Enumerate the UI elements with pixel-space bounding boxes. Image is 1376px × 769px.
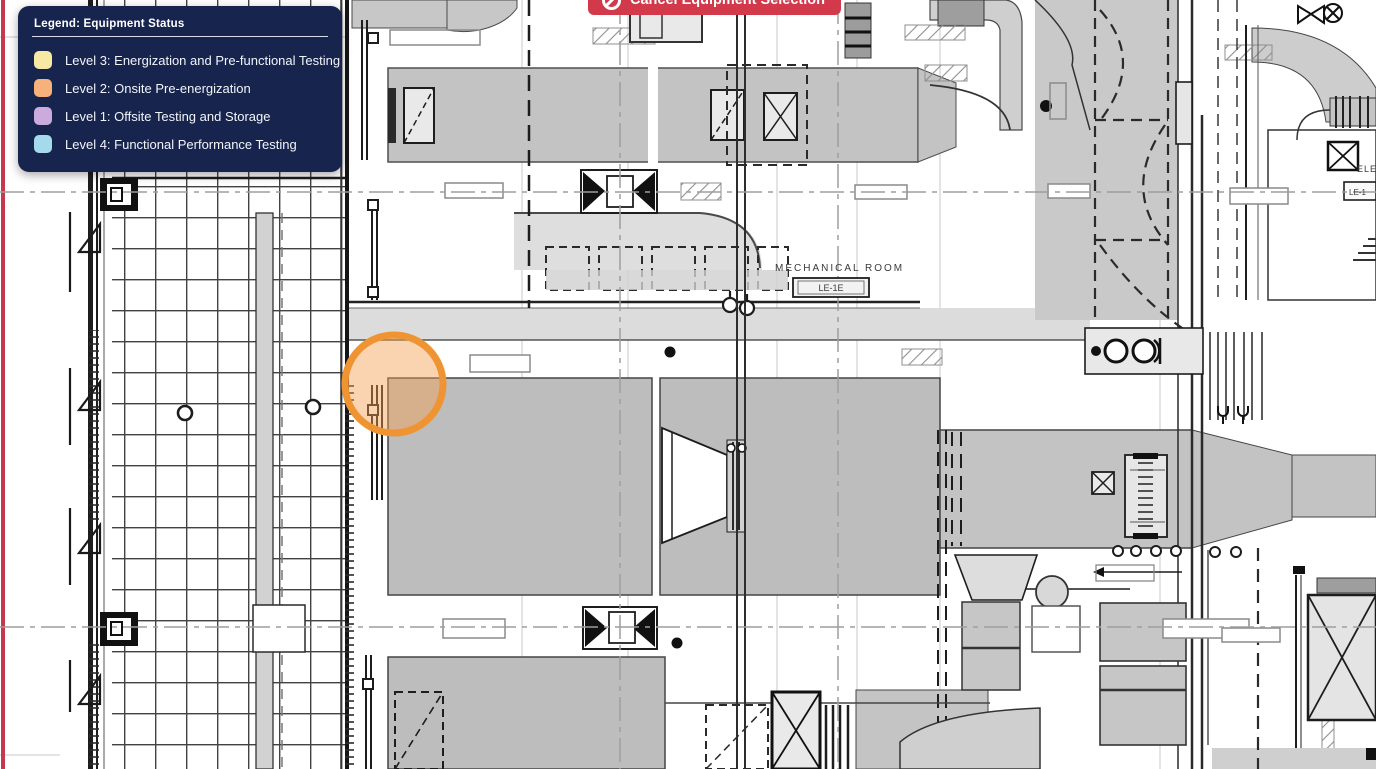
equipment-tag-label: LE-1E	[793, 278, 869, 297]
column-marker-circle	[178, 406, 192, 420]
elevator-label-partial: ELE	[1357, 164, 1376, 174]
shaft-swath	[1035, 0, 1178, 320]
legend-item-label: Level 2: Onsite Pre-energization	[65, 81, 251, 96]
legend-color-swatch	[34, 51, 52, 69]
damper-symbol	[1125, 453, 1167, 539]
legend-item: Level 2: Onsite Pre-energization	[32, 74, 328, 102]
legend-color-swatch	[34, 79, 52, 97]
legend-color-swatch	[34, 135, 52, 153]
mechanical-room-label: MECHANICAL ROOM	[775, 263, 904, 274]
legend-items: Level 3: Energization and Pre-functional…	[32, 46, 328, 158]
legend-item-label: Level 4: Functional Performance Testing	[65, 137, 297, 152]
cancel-button-label: Cancel Equipment Selection	[630, 0, 825, 8]
vertical-duct-strip	[256, 213, 273, 769]
app-viewport: MECHANICAL ROOM LE-1E ELE LE-1 Legend: E…	[0, 0, 1376, 769]
svg-text:LE-1E: LE-1E	[818, 283, 843, 293]
cancel-equipment-selection-button[interactable]: Cancel Equipment Selection	[588, 0, 841, 15]
right-equipment-tag-partial: LE-1	[1349, 188, 1366, 197]
legend-divider	[32, 36, 328, 37]
column-marker-circle	[306, 400, 320, 414]
legend-color-swatch	[34, 107, 52, 125]
legend-title: Legend: Equipment Status	[32, 16, 328, 36]
legend-item-label: Level 1: Offsite Testing and Storage	[65, 109, 271, 124]
legend-item: Level 4: Functional Performance Testing	[32, 130, 328, 158]
equipment-status-legend: Legend: Equipment Status Level 3: Energi…	[18, 6, 342, 172]
red-boundary-line	[1, 0, 5, 769]
selected-equipment-highlight[interactable]	[345, 335, 443, 433]
legend-item: Level 1: Offsite Testing and Storage	[32, 102, 328, 130]
legend-item: Level 3: Energization and Pre-functional…	[32, 46, 328, 74]
legend-item-label: Level 3: Energization and Pre-functional…	[65, 53, 340, 68]
no-entry-icon	[602, 0, 621, 10]
